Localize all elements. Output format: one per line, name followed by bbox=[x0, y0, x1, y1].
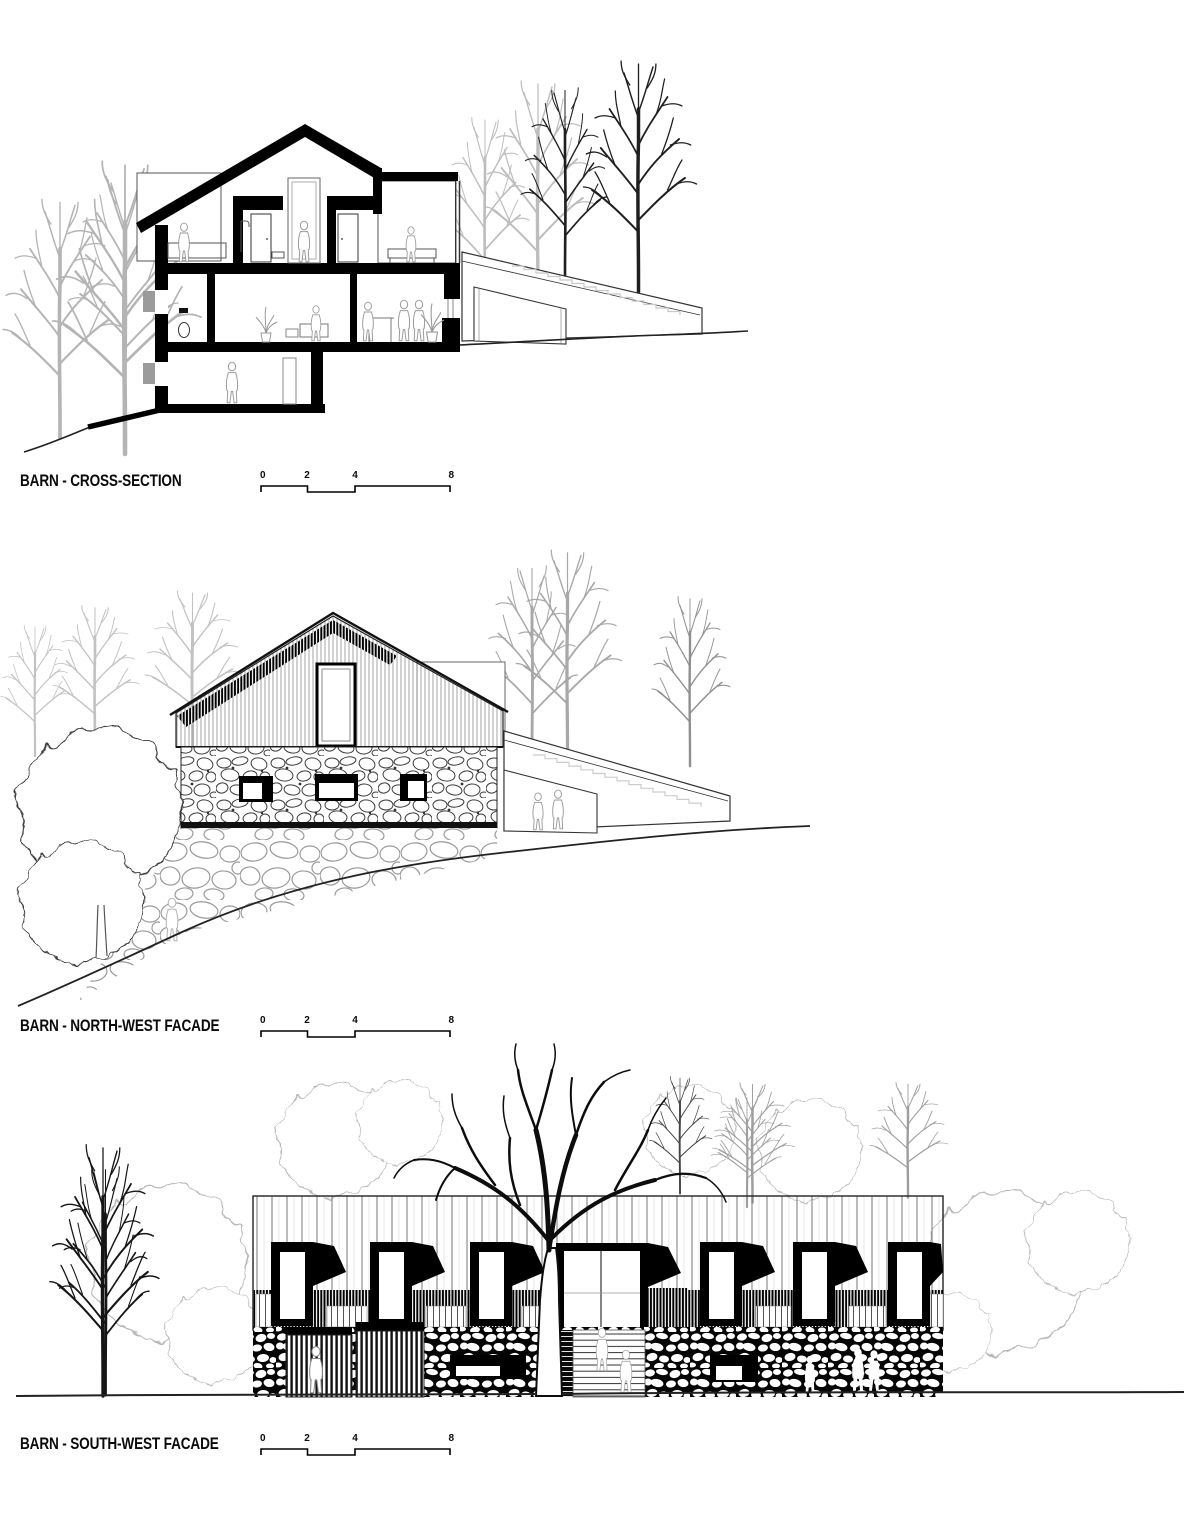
scale-bar-line bbox=[260, 472, 454, 494]
label-row-south-west-facade: BARN - SOUTH-WEST FACADE 0 2 4 8 bbox=[20, 1434, 268, 1458]
scale-bar: 0 2 4 8 bbox=[260, 472, 454, 494]
barn-facade bbox=[253, 1196, 943, 1397]
north-west-facade-drawing bbox=[1, 550, 810, 1006]
tree-bare-right-dark bbox=[521, 61, 697, 292]
drawing-title-cross-section: BARN - CROSS-SECTION bbox=[20, 471, 182, 491]
toilet bbox=[179, 323, 190, 338]
background-wall-right bbox=[378, 181, 456, 263]
drawing-title-north-west-facade: BARN - NORTH-WEST FACADE bbox=[20, 1016, 219, 1036]
scale-bar-line bbox=[260, 1435, 454, 1457]
scale-bar: 0 2 4 8 bbox=[260, 1435, 454, 1457]
sink bbox=[272, 252, 284, 258]
barn-section bbox=[136, 124, 460, 413]
trees-behind-right bbox=[484, 550, 730, 766]
south-west-facade-drawing bbox=[16, 1044, 1184, 1397]
scale-bar-line bbox=[260, 1017, 454, 1039]
embankment-right bbox=[462, 252, 702, 344]
drawing-title-south-west-facade: BARN - SOUTH-WEST FACADE bbox=[20, 1434, 219, 1454]
label-row-north-west-facade: BARN - NORTH-WEST FACADE 0 2 4 8 bbox=[20, 1016, 269, 1040]
ground-line-left bbox=[24, 427, 90, 452]
barn-facade bbox=[170, 613, 508, 828]
scale-bar: 0 2 4 8 bbox=[260, 1017, 454, 1039]
embankment-right bbox=[504, 731, 730, 833]
architectural-sheet: BARN - CROSS-SECTION 0 2 4 8 BARN - NORT… bbox=[0, 0, 1200, 1531]
cross-section-drawing bbox=[3, 61, 748, 454]
label-row-cross-section: BARN - CROSS-SECTION 0 2 4 8 bbox=[20, 471, 222, 495]
drawing-sheet-canvas bbox=[0, 0, 1200, 1531]
gable-window bbox=[317, 664, 355, 746]
